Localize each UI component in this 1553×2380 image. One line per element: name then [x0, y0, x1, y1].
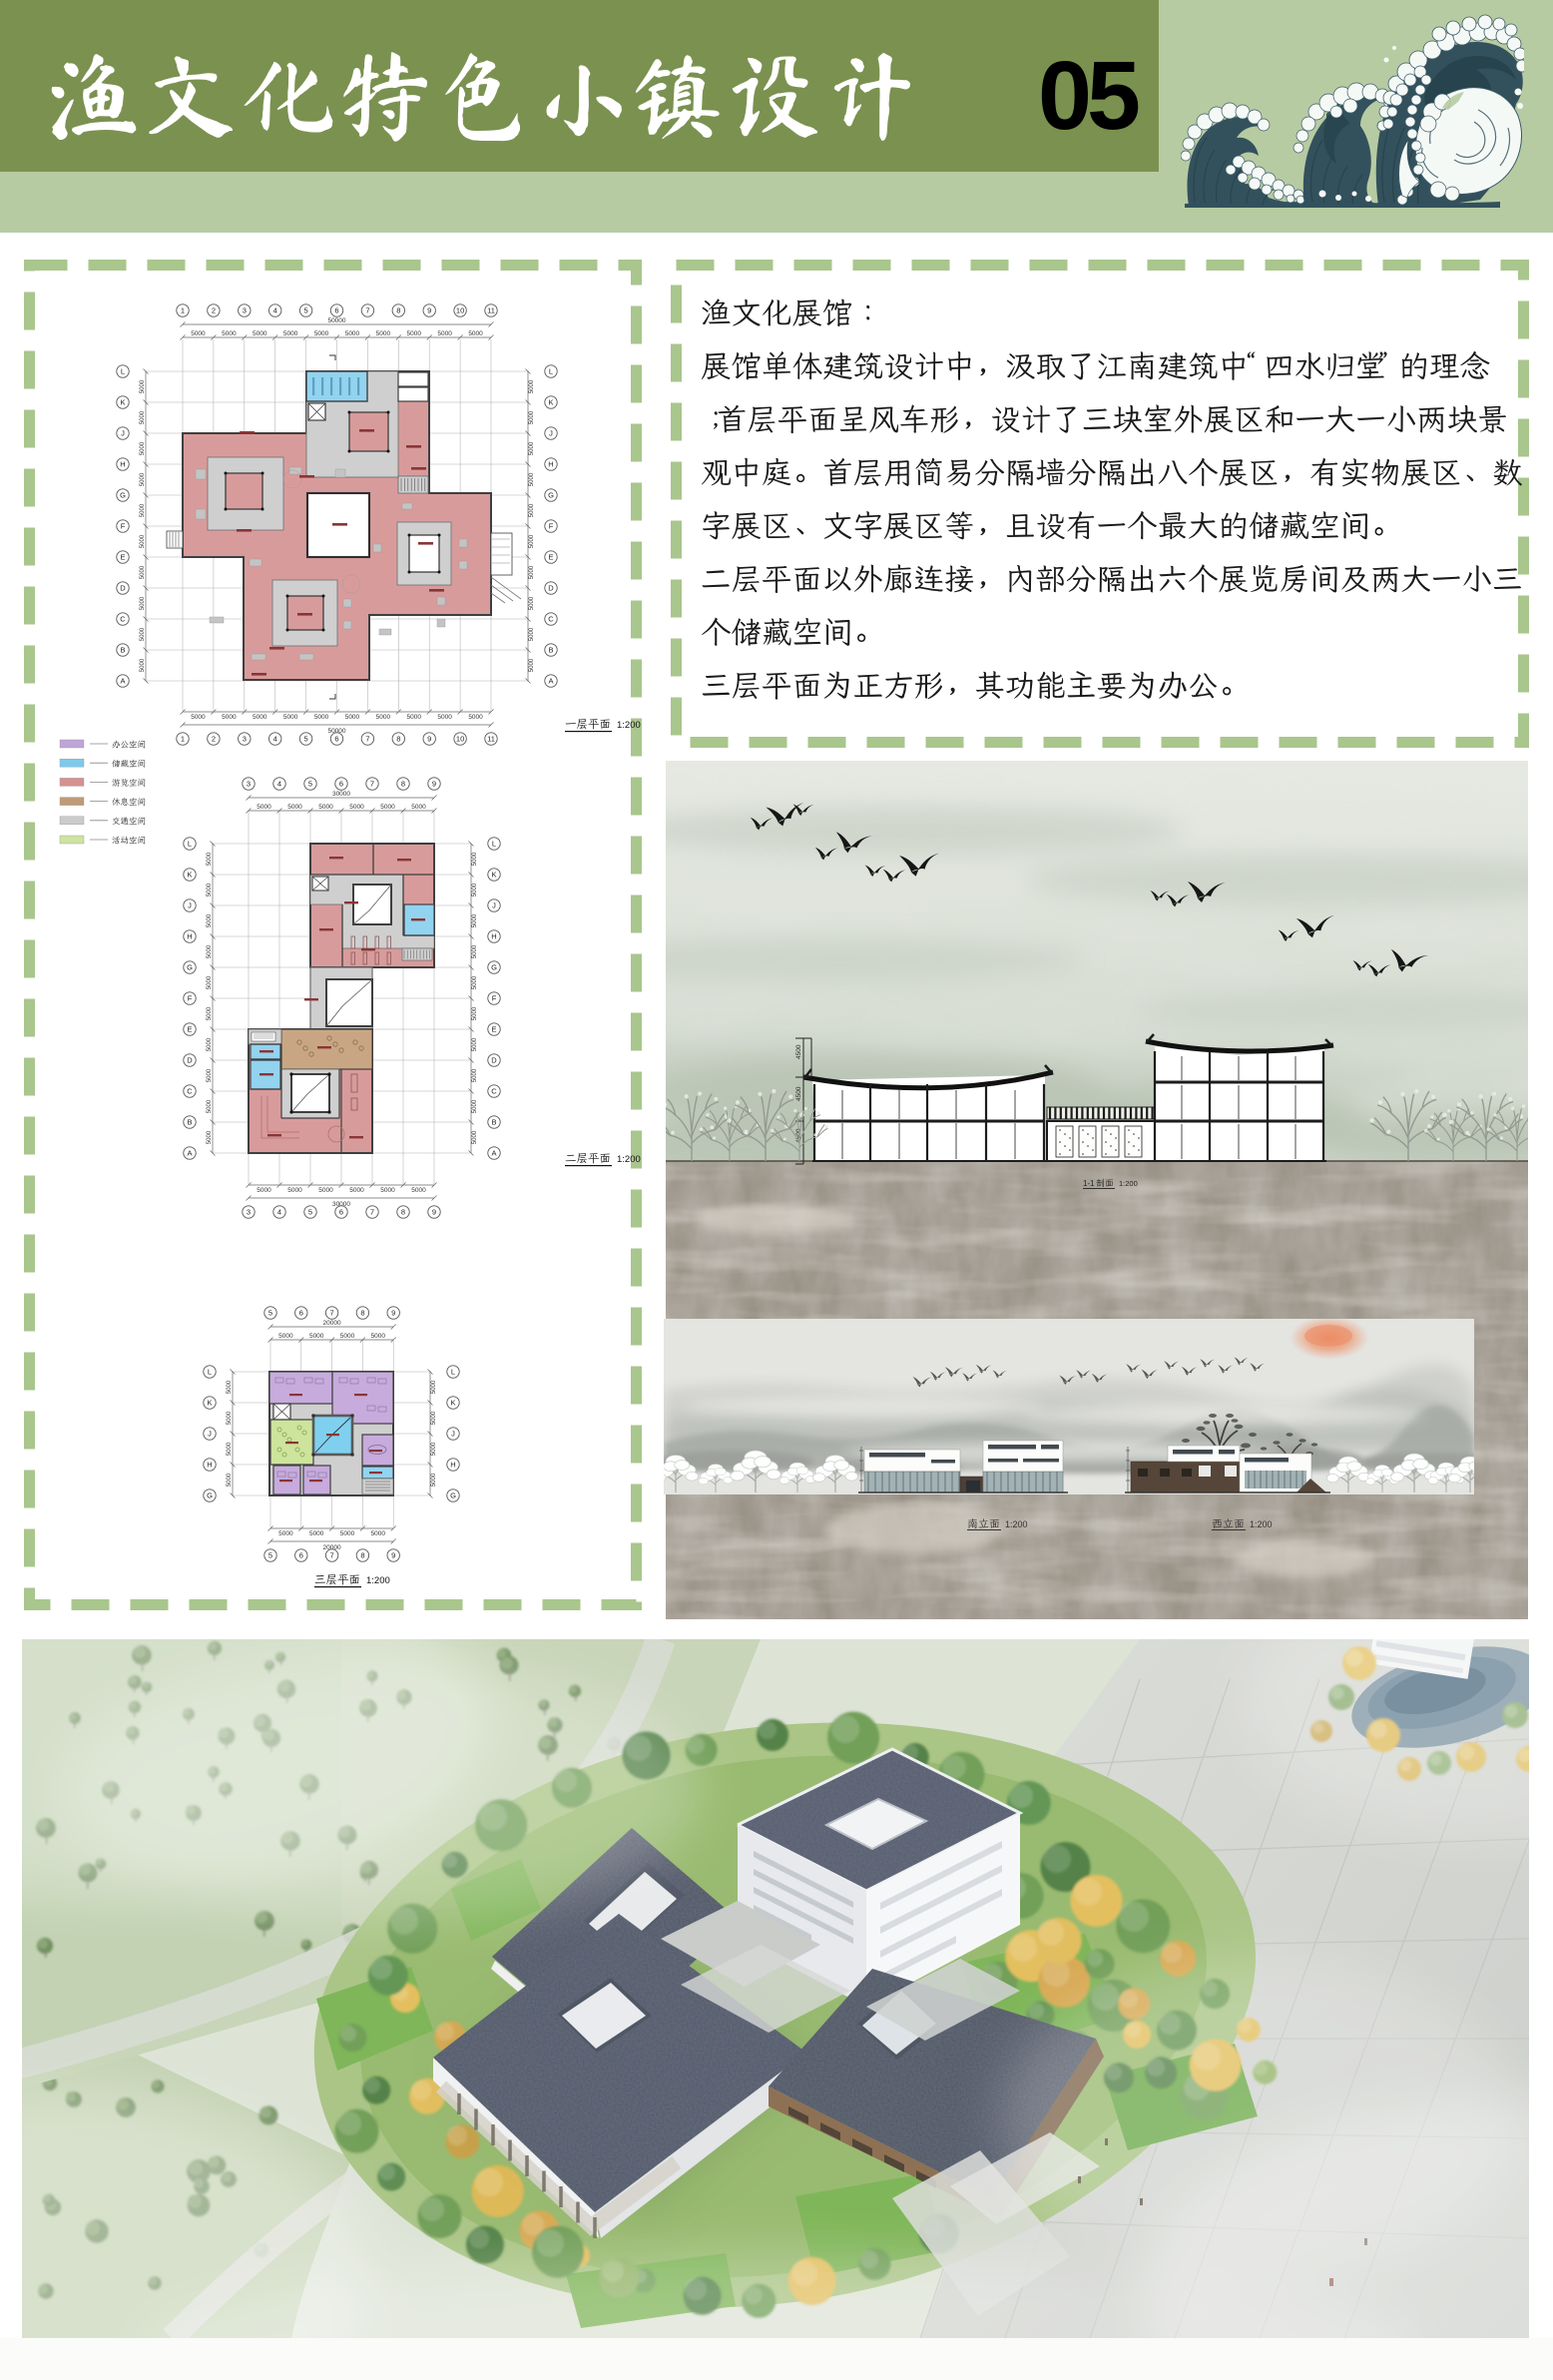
svg-text:1:200: 1:200: [1250, 1519, 1273, 1529]
svg-text:1:200: 1:200: [1005, 1519, 1028, 1529]
